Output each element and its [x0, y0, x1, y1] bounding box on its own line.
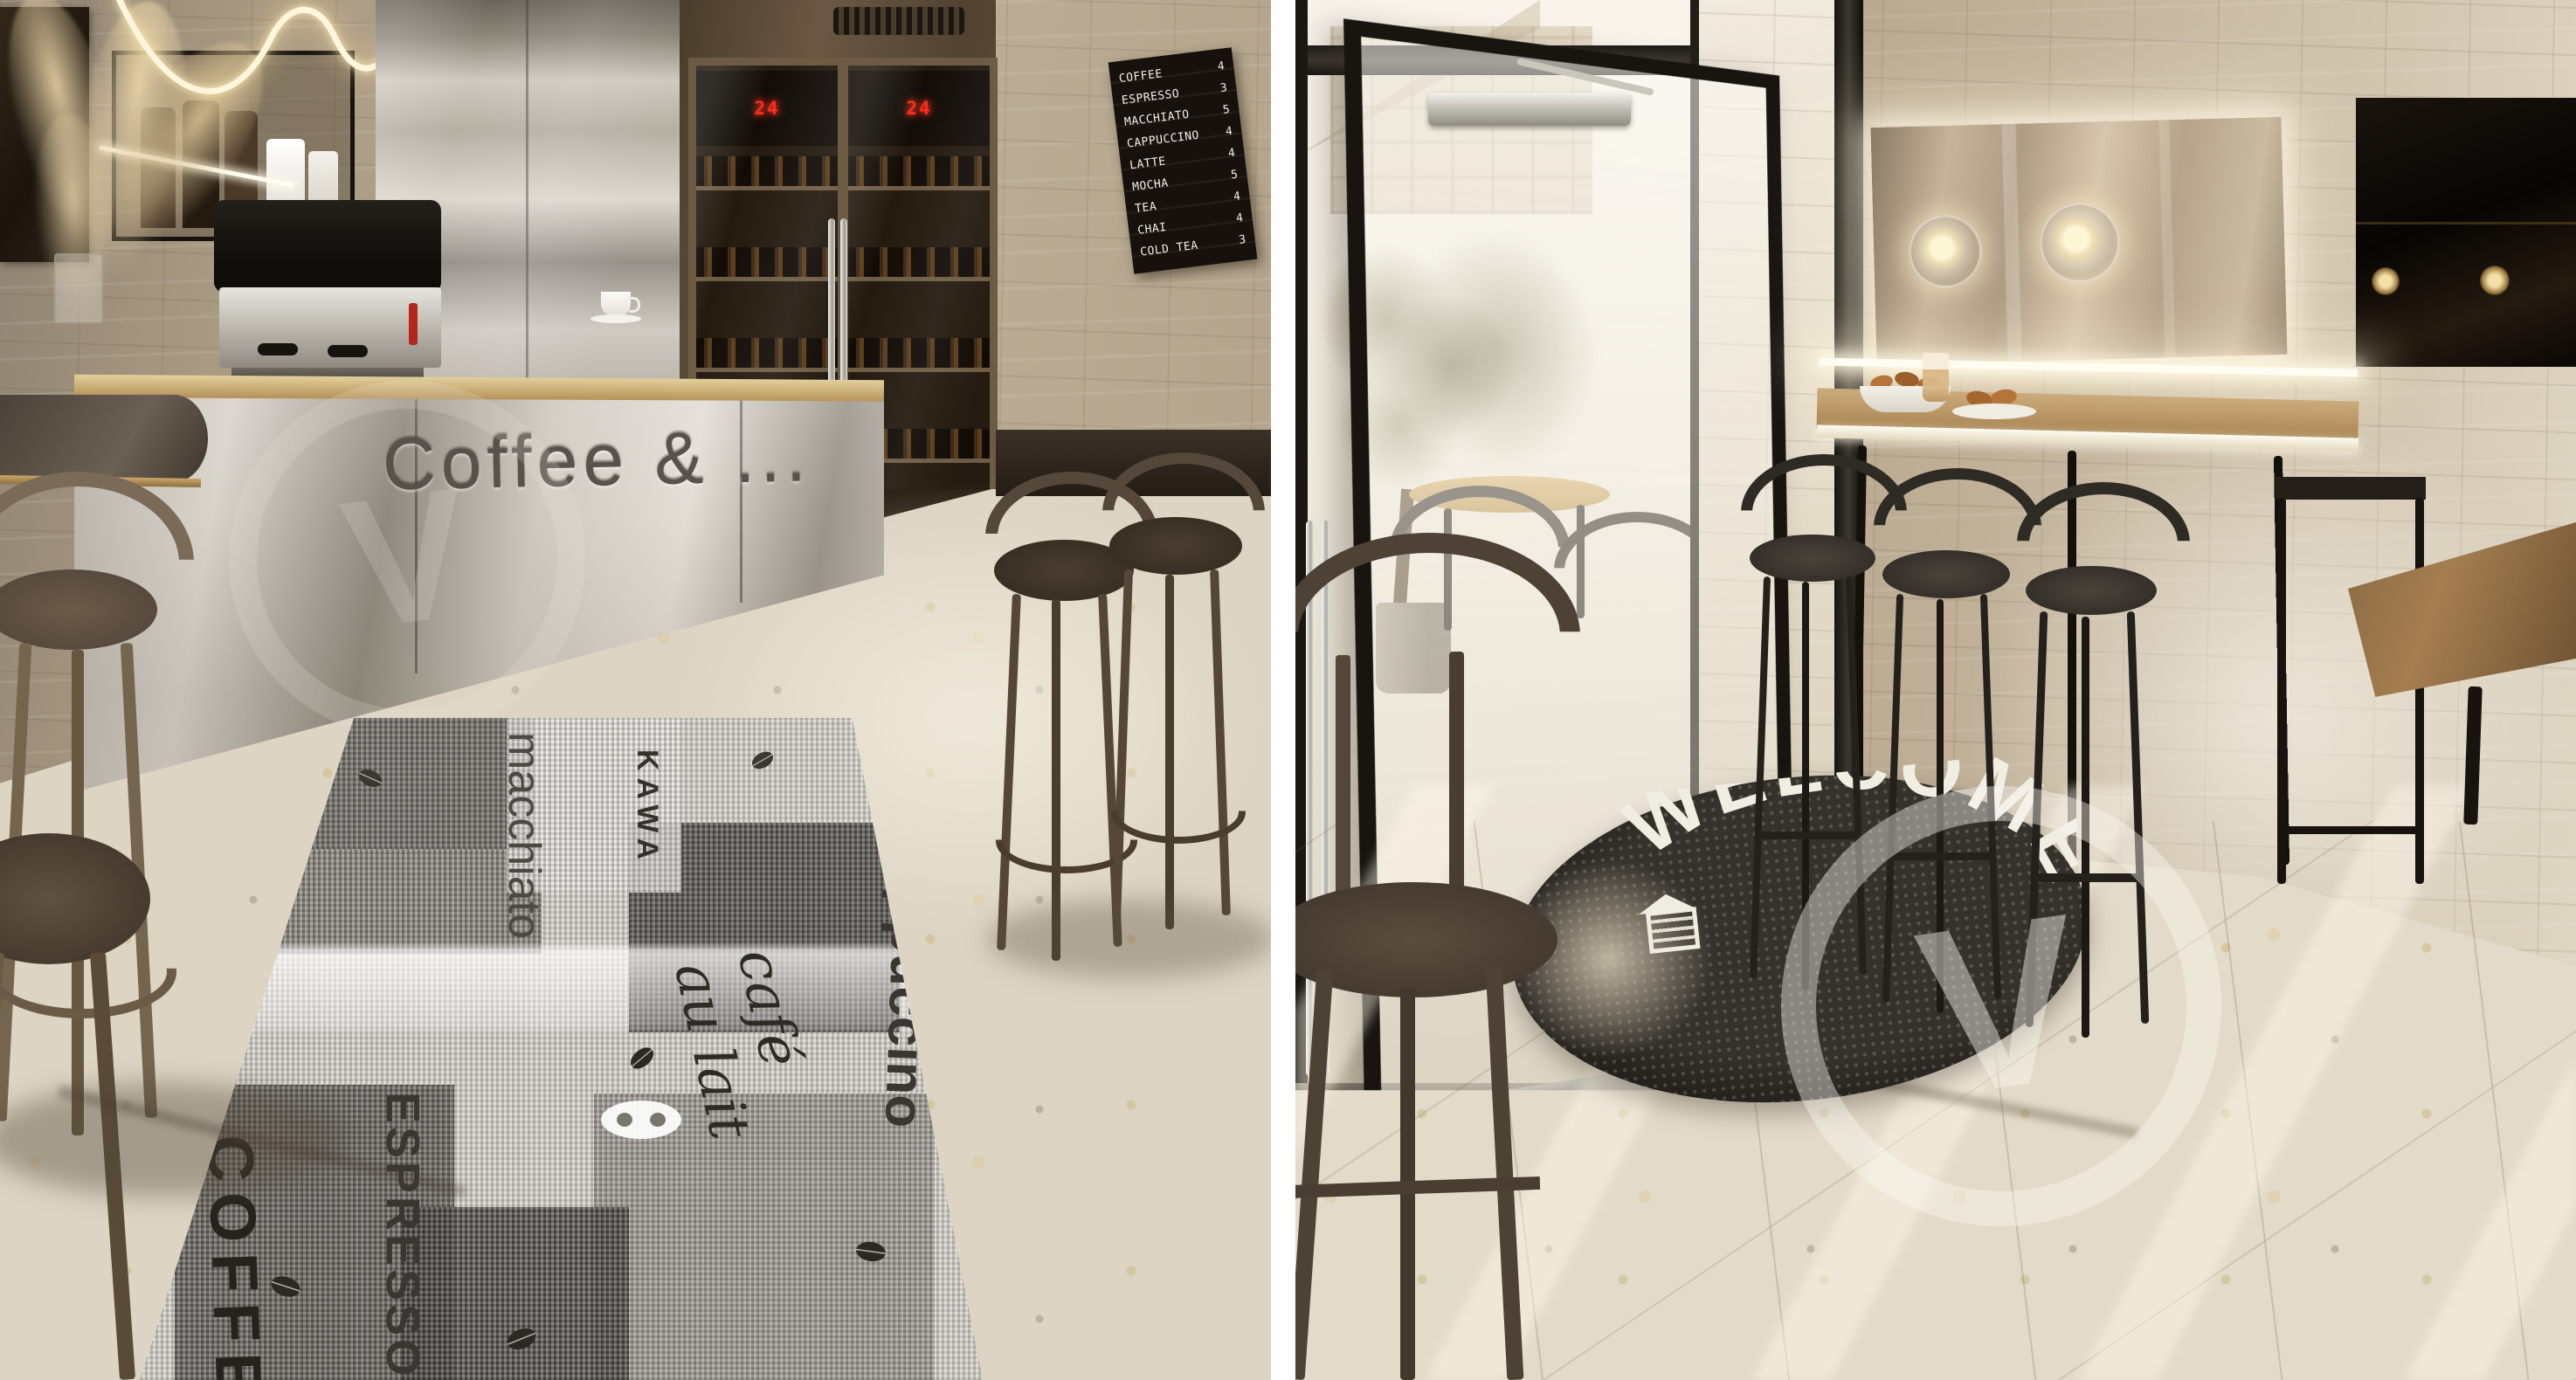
rug-word: macchiato	[498, 732, 550, 939]
espresso-machine	[197, 197, 445, 390]
door-closer	[1428, 93, 1631, 126]
bar-stool	[1102, 452, 1251, 931]
menu-board: COFFEE4 ESPRESSO3 MACCHIATO5 CAPPUCCINO4…	[1108, 47, 1258, 273]
machine-red-accent	[409, 303, 418, 345]
rug-cup-motif	[601, 1101, 681, 1139]
pastry-plate	[1952, 398, 2036, 423]
glass-vase	[54, 253, 103, 323]
panel-divider	[1271, 0, 1295, 1380]
watermark-letter: V	[1904, 861, 2097, 1151]
glass-disc-sconce	[2040, 203, 2120, 283]
portafilter	[328, 345, 368, 357]
coffee-shop-render: 24 24	[0, 0, 2576, 1380]
latte-glass	[1923, 353, 1949, 402]
coffee-cup	[590, 292, 645, 328]
portafilter	[258, 343, 298, 355]
cabinet-vent-grille	[833, 7, 964, 35]
brass-spotlight	[2372, 267, 2400, 295]
rug-word: ESPRESSO	[376, 1092, 430, 1379]
glass-disc-sconce	[1909, 215, 1982, 288]
left-panel-espresso-bar: 24 24	[0, 0, 1271, 1380]
wall-light-fixture	[2356, 98, 2576, 367]
stool-shadow	[987, 900, 1271, 978]
rug-patch	[402, 1207, 629, 1380]
right-panel-entrance: WELCOME	[1295, 0, 2576, 1380]
watermark-letter: V	[332, 445, 482, 672]
brass-spotlight	[2480, 266, 2510, 295]
bar-table	[0, 395, 208, 482]
foreground-stool	[1295, 533, 1557, 1380]
rug-word: KAWA	[630, 749, 664, 866]
